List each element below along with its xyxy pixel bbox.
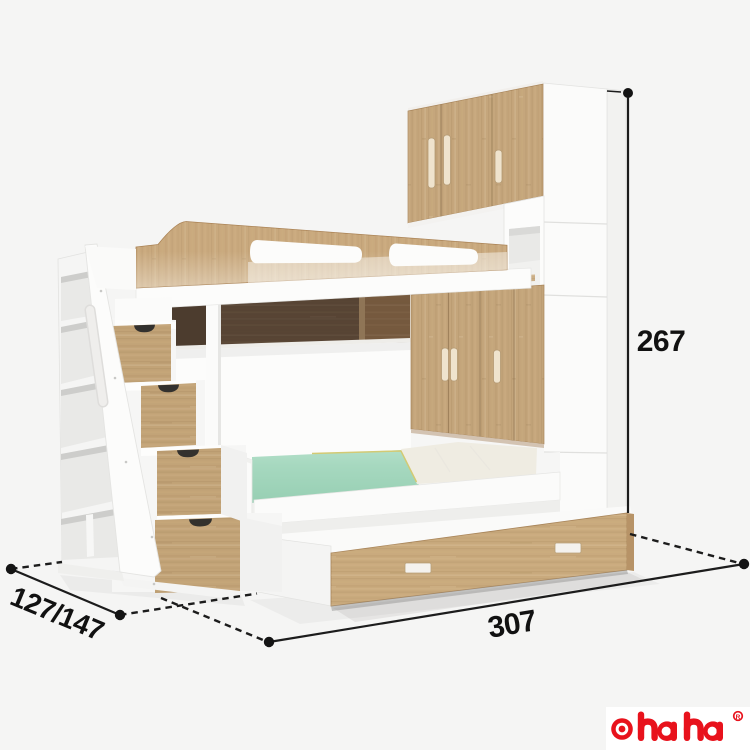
svg-text:R: R xyxy=(736,714,741,721)
svg-text:267: 267 xyxy=(637,325,686,358)
